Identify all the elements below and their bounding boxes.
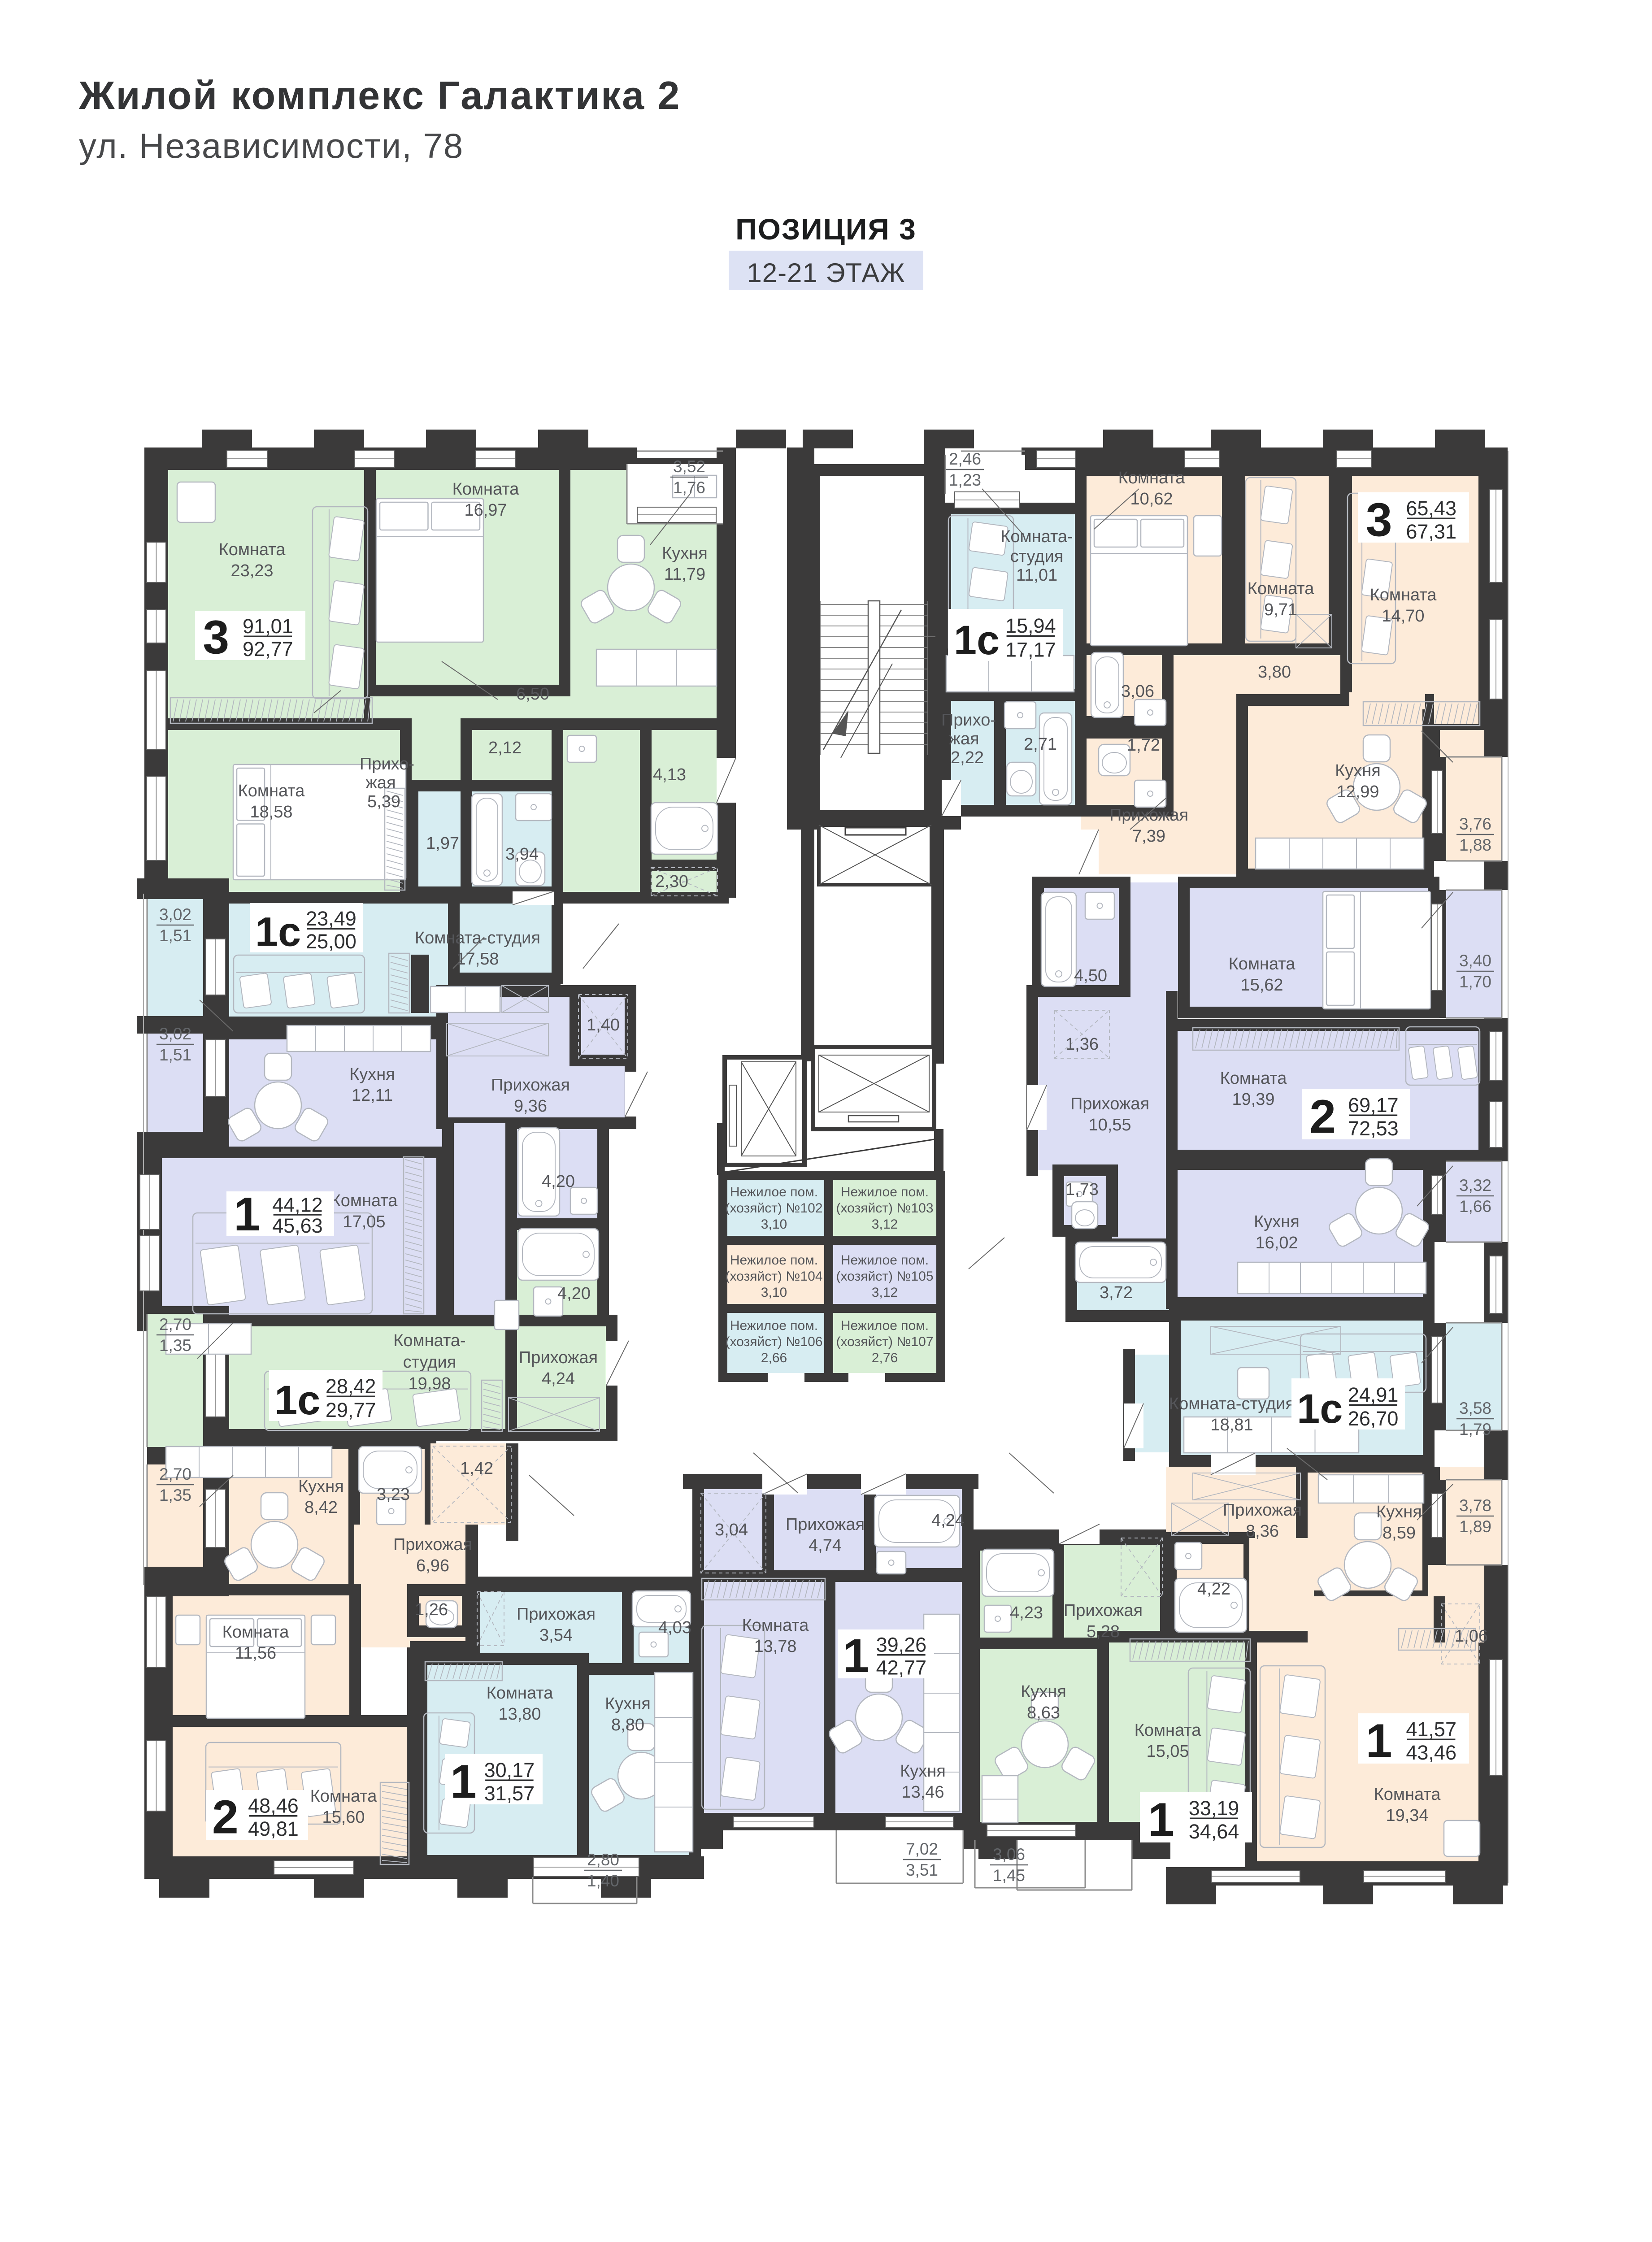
- svg-text:(хозяйст) №104: (хозяйст) №104: [725, 1269, 822, 1284]
- svg-text:2,70: 2,70: [159, 1465, 191, 1483]
- svg-text:Комната: Комната: [742, 1616, 809, 1635]
- svg-text:(хозяйст) №107: (хозяйст) №107: [836, 1334, 933, 1349]
- svg-text:28,42: 28,42: [326, 1375, 376, 1398]
- svg-text:42,77: 42,77: [876, 1656, 927, 1679]
- svg-text:Прихожая: Прихожая: [786, 1515, 865, 1534]
- svg-text:4,23: 4,23: [1010, 1603, 1043, 1622]
- svg-text:67,31: 67,31: [1406, 520, 1456, 543]
- svg-text:3,10: 3,10: [761, 1285, 787, 1300]
- svg-text:72,53: 72,53: [1348, 1117, 1399, 1140]
- svg-text:Комната: Комната: [487, 1684, 554, 1703]
- svg-text:3,72: 3,72: [1100, 1283, 1133, 1302]
- svg-text:69,17: 69,17: [1348, 1094, 1399, 1117]
- svg-text:3,94: 3,94: [505, 845, 539, 864]
- svg-text:ул. Независимости, 78: ул. Независимости, 78: [79, 126, 464, 165]
- svg-text:2,30: 2,30: [655, 872, 688, 891]
- svg-text:3,32: 3,32: [1459, 1176, 1491, 1195]
- svg-text:16,97: 16,97: [464, 501, 507, 520]
- svg-text:11,01: 11,01: [1016, 566, 1057, 585]
- svg-text:1,40: 1,40: [587, 1016, 620, 1034]
- svg-text:Прихо-: Прихо-: [941, 711, 996, 730]
- svg-text:12-21 ЭТАЖ: 12-21 ЭТАЖ: [747, 258, 905, 288]
- svg-text:Прихо-: Прихо-: [360, 755, 414, 773]
- svg-text:8,36: 8,36: [1246, 1522, 1279, 1541]
- svg-text:11,79: 11,79: [664, 565, 705, 584]
- svg-text:4,24: 4,24: [542, 1369, 575, 1388]
- svg-text:4,24: 4,24: [931, 1511, 965, 1530]
- svg-text:Комната: Комната: [331, 1191, 398, 1210]
- svg-text:Комната-: Комната-: [393, 1331, 465, 1350]
- svg-text:48,46: 48,46: [248, 1794, 299, 1817]
- svg-text:1: 1: [1366, 1714, 1392, 1767]
- svg-text:Комната: Комната: [222, 1623, 290, 1642]
- svg-text:2,71: 2,71: [1024, 735, 1057, 754]
- svg-text:13,80: 13,80: [498, 1705, 541, 1724]
- svg-text:16,02: 16,02: [1255, 1234, 1298, 1252]
- svg-text:1,89: 1,89: [1459, 1517, 1491, 1536]
- svg-text:1,66: 1,66: [1459, 1197, 1491, 1216]
- svg-text:12,99: 12,99: [1336, 782, 1379, 801]
- svg-text:1с: 1с: [274, 1377, 320, 1423]
- svg-text:1,35: 1,35: [159, 1486, 191, 1504]
- svg-text:9,36: 9,36: [514, 1097, 547, 1116]
- svg-text:Кухня: Кухня: [605, 1695, 651, 1713]
- svg-text:13,78: 13,78: [754, 1637, 796, 1656]
- svg-text:3,02: 3,02: [159, 1025, 191, 1043]
- svg-text:3,12: 3,12: [872, 1285, 898, 1300]
- svg-text:Нежилое пом.: Нежилое пом.: [730, 1185, 818, 1199]
- svg-text:1,97: 1,97: [426, 834, 459, 853]
- svg-text:29,77: 29,77: [326, 1399, 376, 1421]
- svg-text:24,91: 24,91: [1348, 1383, 1399, 1406]
- svg-text:Комната: Комната: [310, 1787, 378, 1806]
- svg-text:19,98: 19,98: [408, 1374, 451, 1393]
- svg-text:2,80: 2,80: [587, 1851, 619, 1869]
- svg-text:44,12: 44,12: [272, 1194, 323, 1217]
- svg-text:2,46: 2,46: [949, 450, 981, 468]
- svg-text:91,01: 91,01: [243, 615, 293, 638]
- svg-text:39,26: 39,26: [876, 1634, 927, 1656]
- svg-text:2,70: 2,70: [159, 1315, 191, 1334]
- svg-text:14,70: 14,70: [1382, 607, 1424, 626]
- svg-text:15,05: 15,05: [1146, 1742, 1189, 1761]
- svg-text:3: 3: [1366, 493, 1392, 546]
- svg-text:Кухня: Кухня: [1335, 761, 1381, 780]
- svg-text:1,79: 1,79: [1459, 1420, 1491, 1438]
- svg-text:5,39: 5,39: [367, 792, 400, 811]
- svg-text:1,51: 1,51: [159, 926, 191, 945]
- svg-text:Комната: Комната: [1135, 1721, 1202, 1740]
- svg-text:Прихожая: Прихожая: [1223, 1501, 1302, 1520]
- svg-text:5,28: 5,28: [1087, 1622, 1120, 1641]
- svg-text:12,11: 12,11: [352, 1086, 393, 1105]
- svg-text:25,00: 25,00: [306, 930, 356, 953]
- svg-text:7,02: 7,02: [906, 1840, 938, 1858]
- svg-text:жая: жая: [949, 730, 979, 748]
- svg-text:15,94: 15,94: [1005, 614, 1056, 637]
- svg-text:Комната: Комната: [452, 480, 520, 499]
- svg-text:4,03: 4,03: [658, 1618, 691, 1637]
- svg-text:1,36: 1,36: [1065, 1035, 1099, 1054]
- svg-text:1с: 1с: [954, 617, 1000, 663]
- svg-text:3,06: 3,06: [993, 1845, 1025, 1864]
- svg-text:жая: жая: [365, 773, 396, 792]
- svg-text:3,04: 3,04: [715, 1521, 748, 1539]
- svg-text:1,72: 1,72: [1127, 736, 1160, 755]
- svg-text:Кухня: Кухня: [1376, 1503, 1422, 1521]
- svg-text:1,35: 1,35: [159, 1336, 191, 1355]
- svg-text:2,22: 2,22: [951, 748, 984, 767]
- svg-text:17,05: 17,05: [343, 1212, 385, 1231]
- svg-text:студия: студия: [403, 1353, 456, 1372]
- svg-text:(хозяйст) №106: (хозяйст) №106: [725, 1334, 822, 1349]
- svg-text:Комната: Комната: [219, 540, 286, 559]
- svg-text:3: 3: [203, 611, 229, 664]
- svg-text:15,60: 15,60: [322, 1808, 365, 1827]
- svg-text:1,42: 1,42: [460, 1459, 493, 1478]
- svg-text:Нежилое пом.: Нежилое пом.: [841, 1318, 929, 1333]
- svg-text:10,55: 10,55: [1088, 1116, 1131, 1134]
- svg-text:17,17: 17,17: [1005, 639, 1056, 661]
- svg-text:студия: студия: [1010, 547, 1064, 566]
- svg-text:2: 2: [212, 1791, 239, 1844]
- svg-text:4,20: 4,20: [542, 1172, 575, 1191]
- svg-text:8,80: 8,80: [611, 1716, 644, 1734]
- svg-text:33,19: 33,19: [1189, 1797, 1239, 1820]
- svg-text:43,46: 43,46: [1406, 1741, 1456, 1764]
- svg-text:65,43: 65,43: [1406, 497, 1456, 520]
- svg-text:Кухня: Кухня: [349, 1065, 395, 1084]
- svg-text:1: 1: [1148, 1793, 1174, 1846]
- svg-text:Комната: Комната: [1220, 1069, 1287, 1088]
- svg-text:4,74: 4,74: [809, 1536, 842, 1555]
- svg-text:(хозяйст) №105: (хозяйст) №105: [836, 1269, 933, 1284]
- svg-text:Прихожая: Прихожая: [393, 1535, 472, 1554]
- svg-text:4,22: 4,22: [1197, 1580, 1230, 1599]
- svg-text:1: 1: [234, 1188, 260, 1241]
- svg-text:1,51: 1,51: [159, 1046, 191, 1064]
- svg-text:2,76: 2,76: [872, 1351, 898, 1365]
- svg-text:41,57: 41,57: [1406, 1718, 1456, 1741]
- svg-text:Кухня: Кухня: [662, 544, 708, 563]
- svg-text:3,54: 3,54: [539, 1626, 573, 1645]
- svg-text:6,50: 6,50: [516, 685, 549, 704]
- svg-text:9,71: 9,71: [1264, 600, 1297, 619]
- svg-text:Нежилое пом.: Нежилое пом.: [730, 1318, 818, 1333]
- svg-text:3,02: 3,02: [159, 905, 191, 924]
- svg-text:1,88: 1,88: [1459, 836, 1491, 854]
- svg-text:Кухня: Кухня: [900, 1762, 946, 1781]
- svg-text:Комната: Комната: [1370, 586, 1437, 604]
- svg-text:15,62: 15,62: [1240, 976, 1283, 995]
- svg-text:1,40: 1,40: [587, 1872, 619, 1890]
- svg-text:1,06: 1,06: [1455, 1627, 1488, 1646]
- svg-text:3,78: 3,78: [1459, 1496, 1491, 1515]
- svg-text:Комната: Комната: [1229, 955, 1296, 973]
- svg-text:1,70: 1,70: [1459, 973, 1491, 991]
- svg-text:45,63: 45,63: [272, 1214, 323, 1237]
- svg-text:4,13: 4,13: [653, 765, 686, 784]
- svg-text:3,10: 3,10: [761, 1217, 787, 1232]
- svg-text:Нежилое пом.: Нежилое пом.: [841, 1185, 929, 1199]
- svg-text:1,26: 1,26: [415, 1600, 448, 1619]
- svg-text:8,42: 8,42: [304, 1498, 338, 1517]
- svg-text:Прихожая: Прихожая: [519, 1348, 598, 1367]
- svg-text:Кухня: Кухня: [1021, 1682, 1066, 1701]
- svg-text:3,80: 3,80: [1258, 663, 1291, 682]
- svg-text:19,34: 19,34: [1386, 1806, 1428, 1825]
- svg-text:17,58: 17,58: [456, 950, 499, 969]
- svg-text:30,17: 30,17: [484, 1759, 535, 1781]
- svg-text:8,63: 8,63: [1027, 1703, 1060, 1722]
- svg-text:Комната-: Комната-: [1000, 527, 1073, 546]
- svg-text:Комната-студия: Комната-студия: [1169, 1395, 1295, 1413]
- svg-text:3,12: 3,12: [872, 1217, 898, 1232]
- svg-text:3,06: 3,06: [1121, 682, 1154, 701]
- svg-text:1с: 1с: [255, 909, 301, 955]
- svg-text:11,56: 11,56: [235, 1644, 276, 1663]
- svg-text:8,59: 8,59: [1382, 1524, 1416, 1542]
- svg-text:Прихожая: Прихожая: [517, 1605, 596, 1624]
- svg-text:1с: 1с: [1297, 1386, 1343, 1432]
- svg-text:6,96: 6,96: [416, 1556, 449, 1575]
- svg-text:2,66: 2,66: [761, 1351, 787, 1365]
- svg-text:(хозяйст) №102: (хозяйст) №102: [725, 1201, 822, 1216]
- svg-text:23,23: 23,23: [230, 561, 273, 580]
- svg-text:3,51: 3,51: [906, 1861, 938, 1879]
- svg-text:18,81: 18,81: [1210, 1416, 1253, 1434]
- svg-text:Комната: Комната: [238, 782, 305, 800]
- svg-text:Кухня: Кухня: [1254, 1212, 1300, 1231]
- svg-text:Жилой комплекс Галактика 2: Жилой комплекс Галактика 2: [78, 73, 681, 117]
- svg-text:23,49: 23,49: [306, 907, 356, 930]
- svg-text:2: 2: [1309, 1090, 1336, 1143]
- svg-text:ПОЗИЦИЯ 3: ПОЗИЦИЯ 3: [735, 213, 917, 246]
- svg-text:10,62: 10,62: [1130, 490, 1173, 508]
- svg-text:Комната: Комната: [1248, 579, 1315, 598]
- svg-text:1,73: 1,73: [1065, 1180, 1099, 1199]
- svg-text:13,46: 13,46: [901, 1783, 944, 1802]
- svg-text:1,23: 1,23: [949, 471, 981, 489]
- svg-text:26,70: 26,70: [1348, 1407, 1399, 1430]
- svg-text:Нежилое пом.: Нежилое пом.: [730, 1253, 818, 1268]
- svg-text:(хозяйст) №103: (хозяйст) №103: [836, 1201, 933, 1216]
- svg-text:34,64: 34,64: [1189, 1820, 1239, 1843]
- svg-text:Комната: Комната: [1374, 1785, 1441, 1804]
- svg-text:Прихожая: Прихожая: [1070, 1095, 1149, 1113]
- svg-text:1: 1: [843, 1629, 869, 1682]
- svg-text:3,58: 3,58: [1459, 1399, 1491, 1417]
- svg-text:1,45: 1,45: [993, 1866, 1025, 1885]
- svg-text:Прихожая: Прихожая: [1064, 1601, 1143, 1620]
- svg-text:Прихожая: Прихожая: [1109, 806, 1188, 825]
- svg-text:3,40: 3,40: [1459, 952, 1491, 970]
- svg-text:Комната: Комната: [1118, 469, 1186, 487]
- svg-text:3,76: 3,76: [1459, 815, 1491, 833]
- svg-text:1: 1: [450, 1755, 477, 1808]
- svg-text:4,20: 4,20: [557, 1284, 591, 1303]
- svg-text:19,39: 19,39: [1232, 1090, 1274, 1109]
- svg-text:31,57: 31,57: [484, 1782, 535, 1805]
- svg-text:1,76: 1,76: [673, 478, 705, 497]
- svg-text:3,23: 3,23: [377, 1485, 410, 1504]
- svg-text:18,58: 18,58: [250, 803, 292, 821]
- svg-text:92,77: 92,77: [243, 638, 293, 660]
- svg-text:Прихожая: Прихожая: [491, 1076, 570, 1095]
- svg-text:4,50: 4,50: [1074, 966, 1107, 985]
- svg-text:Нежилое пом.: Нежилое пом.: [841, 1253, 929, 1268]
- svg-text:Комната-студия: Комната-студия: [415, 929, 540, 947]
- svg-text:7,39: 7,39: [1132, 827, 1165, 846]
- svg-text:Кухня: Кухня: [298, 1477, 344, 1496]
- svg-text:49,81: 49,81: [248, 1817, 299, 1840]
- svg-text:3,52: 3,52: [673, 457, 705, 476]
- svg-text:2,12: 2,12: [488, 739, 522, 757]
